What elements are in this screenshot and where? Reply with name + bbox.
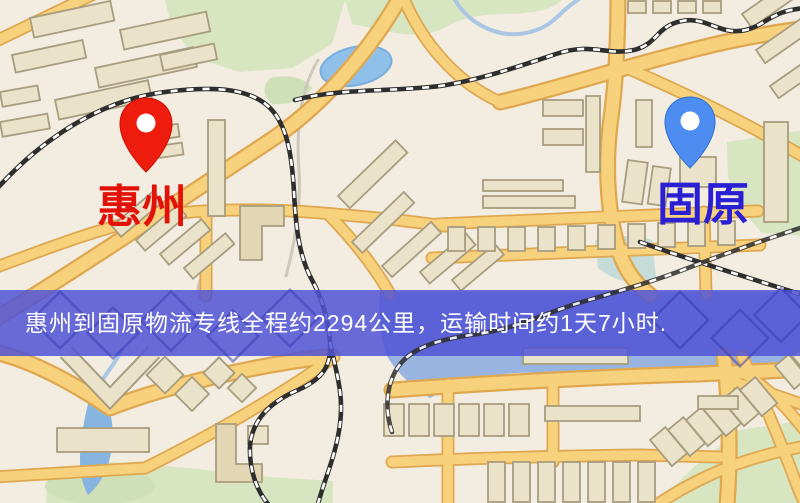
banner-text: 惠州到固原物流专线全程约2294公里，运输时间约1天7小时. — [25, 310, 667, 336]
route-map-screenshot: 惠州到固原物流专线全程约2294公里，运输时间约1天7小时. 惠州 固原 — [0, 0, 800, 503]
destination-label: 固原 — [657, 178, 749, 230]
origin-label: 惠州 — [97, 181, 187, 232]
destination-pin-hole — [681, 112, 700, 131]
origin-pin-hole — [137, 114, 156, 133]
map-canvas: 惠州到固原物流专线全程约2294公里，运输时间约1天7小时. 惠州 固原 — [0, 0, 800, 503]
